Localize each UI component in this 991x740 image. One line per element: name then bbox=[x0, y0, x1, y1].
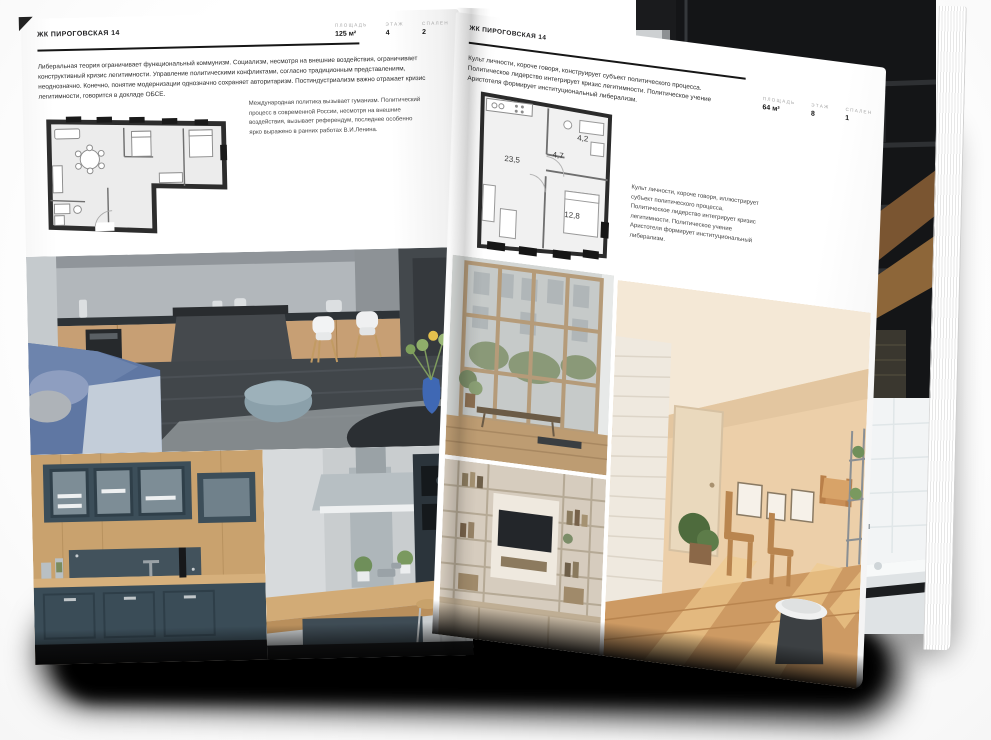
floor-plan-125m2 bbox=[39, 104, 234, 243]
photo-kitchen-island bbox=[26, 247, 468, 455]
stat-area: ПЛОЩАДЬ 64 м² bbox=[762, 96, 795, 115]
stat-bedrooms: СПАЛЕН 2 bbox=[422, 20, 449, 36]
room-area-living: 23,5 bbox=[504, 154, 520, 165]
stat-bedrooms-label: СПАЛЕН bbox=[422, 20, 449, 26]
attic-room-illustration bbox=[603, 280, 870, 689]
stat-floor-value: 8 bbox=[811, 110, 830, 119]
left-page-title: ЖК ПИРОГОВСКАЯ 14 bbox=[37, 30, 120, 39]
right-floor-plan: 23,5 4,7 4,2 12,8 bbox=[465, 86, 621, 267]
photo-attic-room bbox=[603, 280, 870, 689]
left-stats: ПЛОЩАДЬ 125 м² ЭТАЖ 4 СПАЛЕН 2 bbox=[335, 20, 449, 38]
stat-area-value: 125 м² bbox=[335, 30, 368, 38]
page-corner-curl bbox=[19, 17, 33, 31]
stat-area-label: ПЛОЩАДЬ bbox=[335, 22, 368, 28]
stat-floor-label: ЭТАЖ bbox=[385, 21, 404, 26]
left-header-rule bbox=[37, 42, 359, 51]
dark-stool-bowl bbox=[773, 596, 827, 671]
stat-floor: ЭТАЖ 8 bbox=[811, 102, 830, 119]
left-paragraph: Либеральная теория ограничивает функцион… bbox=[38, 54, 443, 103]
right-plan-caption: Культ личности, короче говоря, иллюстрир… bbox=[629, 183, 765, 258]
room-area-bath: 4,2 bbox=[577, 133, 589, 143]
left-plan-caption: Международная политика вызывает гуманизм… bbox=[249, 96, 422, 138]
room-area-hall: 4,7 bbox=[552, 150, 564, 160]
stat-area-value: 64 м² bbox=[762, 104, 795, 115]
stat-floor: ЭТАЖ 4 bbox=[385, 21, 404, 36]
kitchen-island-illustration bbox=[26, 247, 468, 455]
stat-bedrooms-value: 2 bbox=[422, 28, 449, 36]
left-floor-plan bbox=[39, 104, 234, 242]
right-stats: ПЛОЩАДЬ 64 м² ЭТАЖ 8 СПАЛЕН 1 bbox=[762, 96, 872, 125]
photo-navy-kitchen bbox=[31, 450, 268, 665]
stat-bedrooms: СПАЛЕН 1 bbox=[845, 107, 872, 125]
stat-area: ПЛОЩАДЬ 125 м² bbox=[335, 22, 368, 38]
floor-plan-64m2: 23,5 4,7 4,2 12,8 bbox=[465, 86, 621, 270]
stat-floor-value: 4 bbox=[386, 29, 405, 36]
stat-bedrooms-value: 1 bbox=[845, 115, 872, 125]
right-page: ЖК ПИРОГОВСКАЯ 14 Культ личности, короче… bbox=[432, 12, 886, 689]
navy-kitchen-illustration bbox=[31, 450, 268, 665]
room-area-bedroom: 12,8 bbox=[564, 210, 580, 221]
magazine-spread-mockup: ЖК ПИРОГОВСКАЯ 14 ПЛОЩАДЬ 125 м² ЭТАЖ 4 … bbox=[0, 0, 991, 740]
left-page: ЖК ПИРОГОВСКАЯ 14 ПЛОЩАДЬ 125 м² ЭТАЖ 4 … bbox=[21, 9, 474, 665]
stat-bedrooms-label: СПАЛЕН bbox=[845, 107, 872, 115]
stat-floor-label: ЭТАЖ bbox=[811, 102, 830, 109]
